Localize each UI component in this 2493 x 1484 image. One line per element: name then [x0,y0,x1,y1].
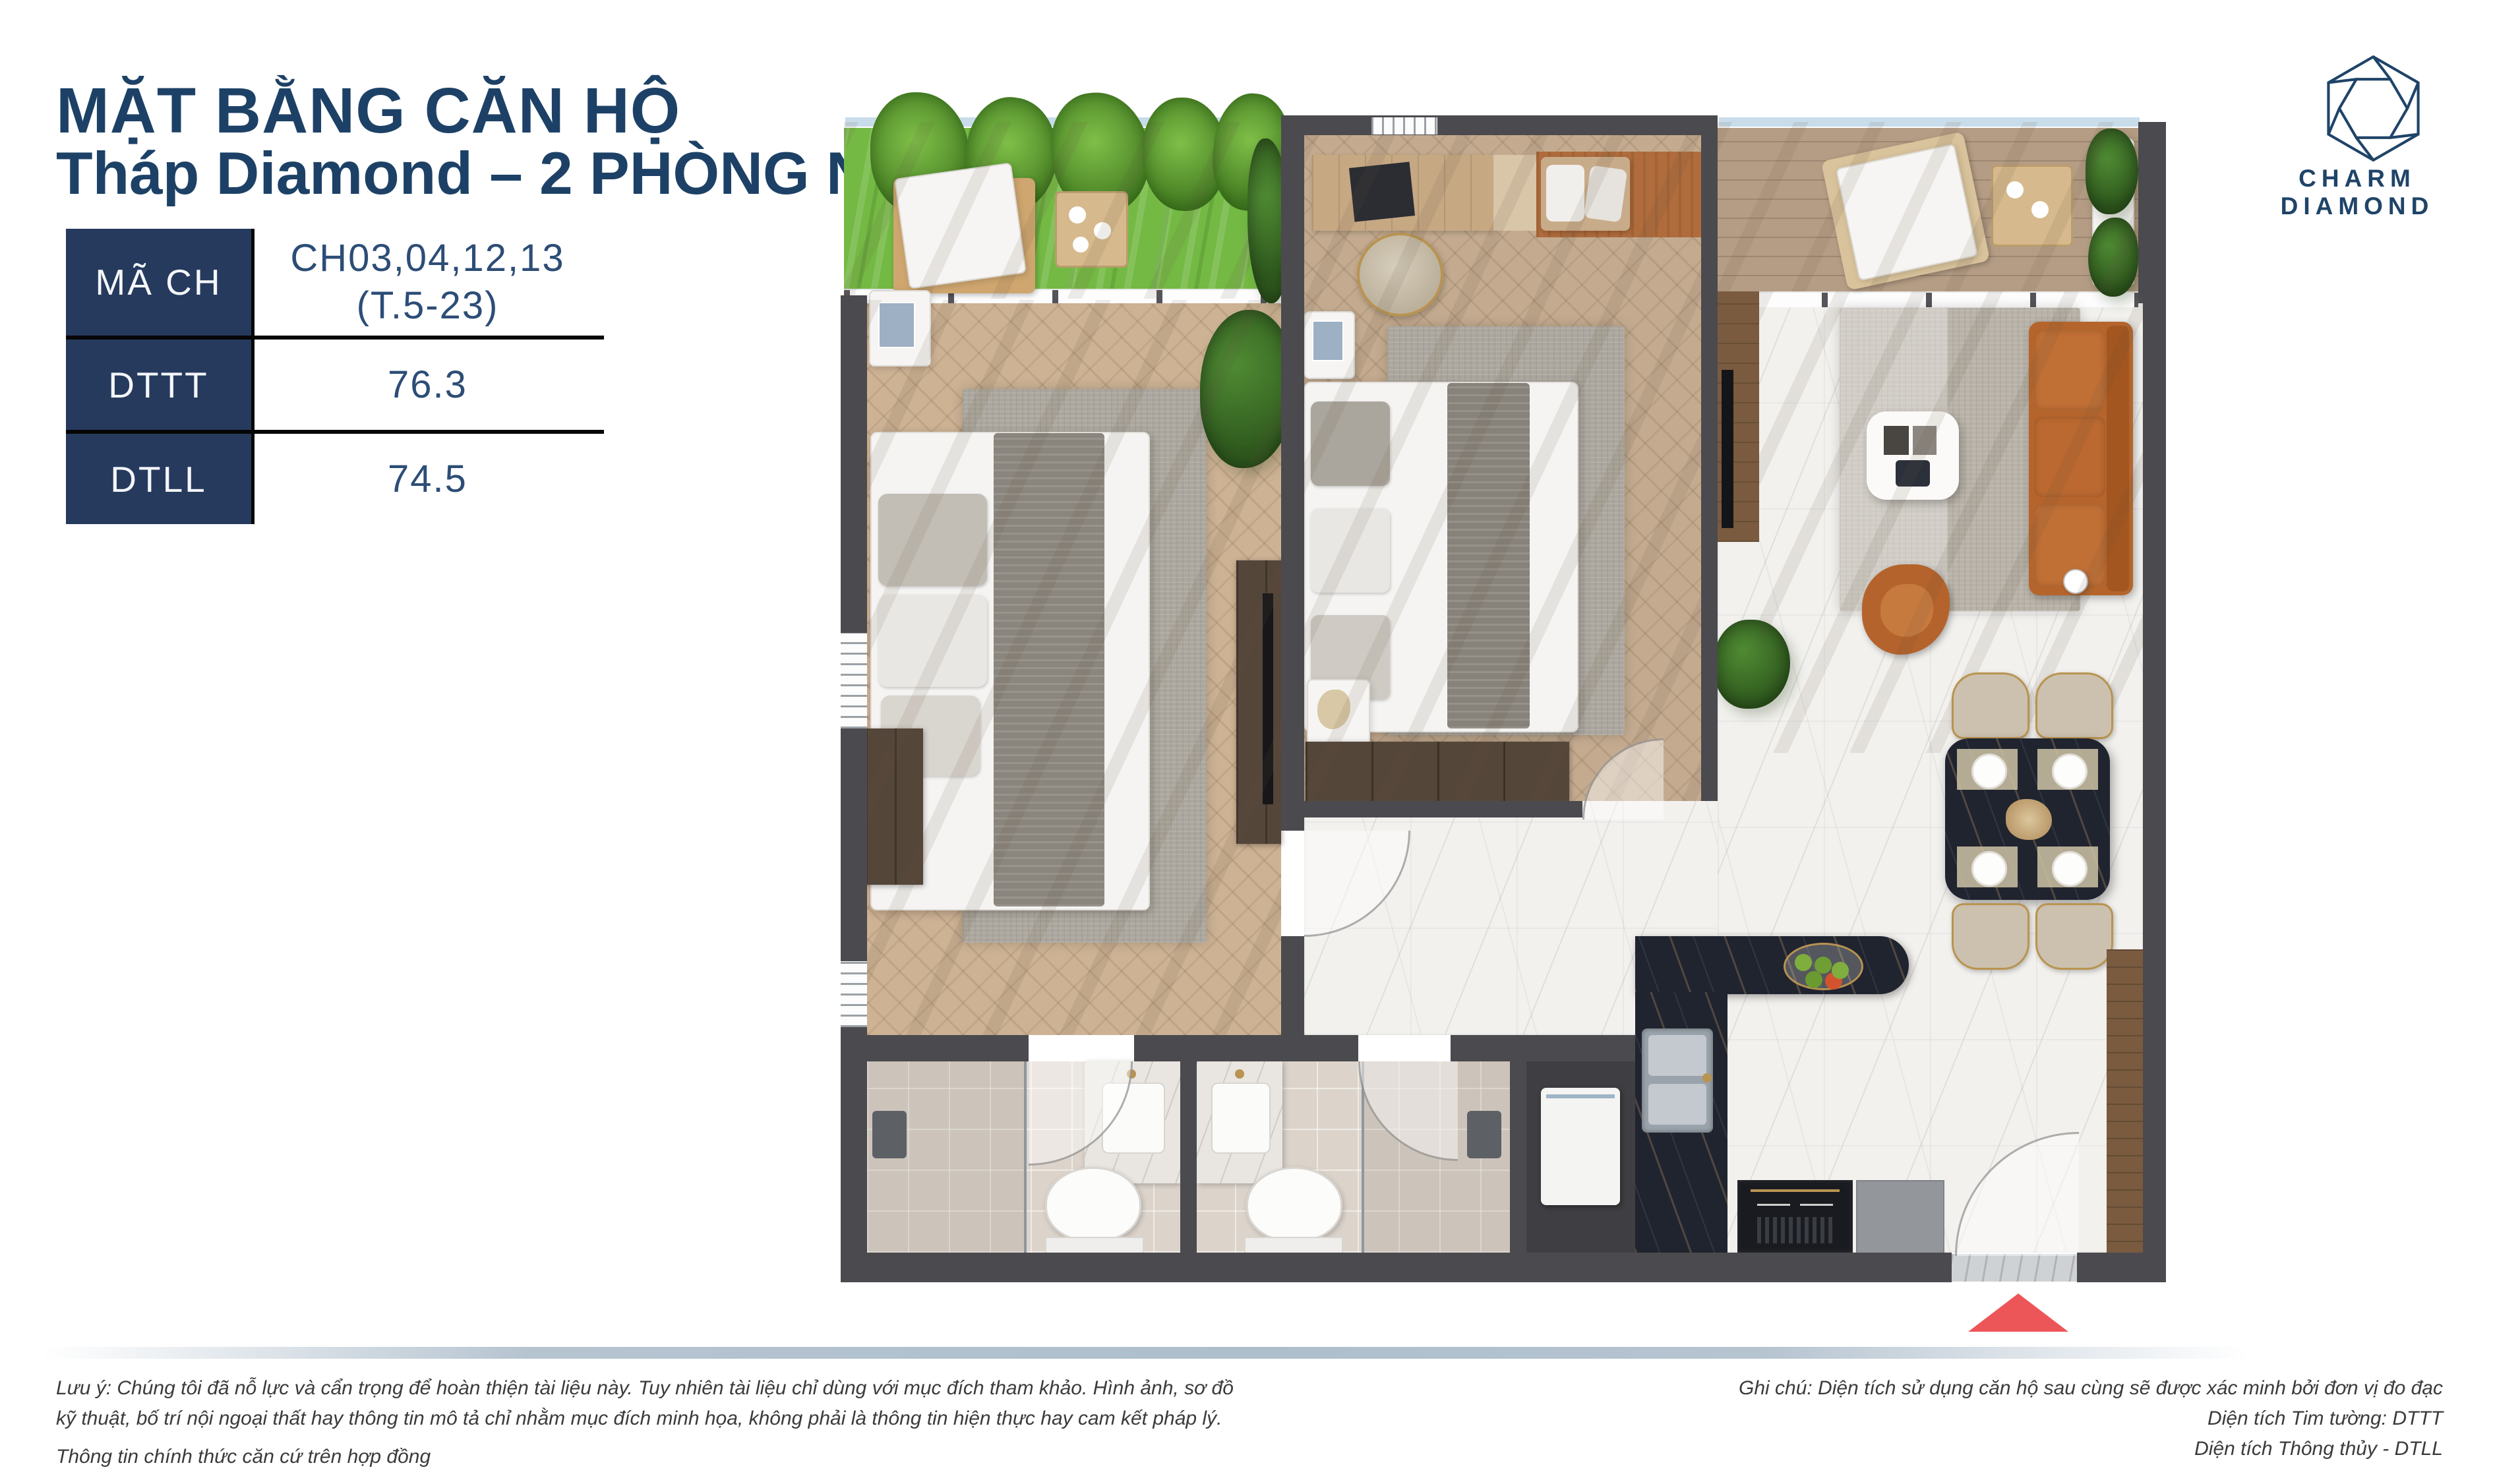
washer-control-strip [1546,1094,1615,1098]
dining-chair-4 [2035,903,2113,970]
bedroom-1-left-window [841,633,867,728]
bedroom-2-vanity-stool [1357,233,1443,316]
wall-niche-left [1510,1061,1526,1253]
footer-notes: Ghi chú: Diện tích sử dụng căn hộ sau cù… [1739,1373,2443,1464]
wall-bathroom-top-2 [1134,1035,1358,1061]
cup-2 [1094,222,1111,239]
bedroom-1-side-table [869,290,931,367]
brand-name: CHARM DIAMOND [2221,165,2493,220]
magazines [878,302,915,348]
bedroom-2-counter [1493,155,1536,231]
bathroom-2-shower-head [1467,1111,1501,1158]
footer-right-line-2: Diện tích Tim tường: DTTT [1739,1404,2443,1434]
oven-text-line-2 [1800,1204,1833,1206]
kitchen-island-bar [1635,936,1909,994]
oven-controls [1757,1217,1833,1243]
sink-bowl-1 [1648,1035,1706,1076]
wall-bedroom-divider-lower [1281,936,1304,1035]
entry-wood-panel-wall [2107,949,2143,1253]
bathroom-2-tap [1235,1069,1244,1079]
wall-top-bedroom-2 [1281,115,1718,135]
wall-bedroom-2-living [1701,122,1718,801]
bed-1-pillow-1 [878,494,987,586]
bathroom-1-shower-head [872,1111,907,1158]
sofa-cushion-1 [2034,330,2105,410]
bathroom-1-shower-glass [1024,1061,1027,1253]
dining-table [1945,738,2110,900]
bedroom-2-bench [1541,157,1630,231]
bedroom-2-wardrobe [1306,742,1569,801]
oven-text-line-1 [1757,1204,1790,1206]
bench-pillow-1 [1546,165,1584,222]
divider-bar [43,1347,2248,1359]
footer-left-line-2: kỹ thuật, bố trí nội ngoại thất hay thôn… [56,1404,1234,1434]
cup-3 [1073,237,1089,252]
wall-bathroom-top-3 [1451,1035,1635,1061]
laptop [1349,162,1415,222]
sink-bowl-2 [1648,1084,1706,1125]
placemat-2 [2037,749,2098,790]
placemat-3 [1957,846,2018,887]
bedroom-2-side-table-top [1304,311,1355,379]
oven [1737,1180,1853,1253]
plate-3 [1971,851,2007,887]
bathroom-2-toilet-bowl [1246,1167,1342,1242]
cup-5 [2031,201,2049,218]
dining-chair-3 [1952,903,2029,970]
bed-2-pillow-1 [1311,401,1390,486]
wall-bottom-right [2077,1253,2166,1282]
unit-codes-line1: CH03,04,12,13 [290,235,564,282]
bench-pillow-2 [1584,165,1628,222]
table-rule-vertical [251,229,255,524]
coffee-table-book-1 [1884,426,1909,455]
entrance-doormat [1952,1254,2077,1282]
balcony-2-glass-rail [1718,116,2141,128]
wall-balcony-2-right [2138,122,2166,303]
coffee-table [1867,411,1959,500]
coffee-table-book-2 [1913,426,1937,455]
fruit-bowl [1784,943,1863,990]
balcony-2-window-rail [1718,291,2138,307]
table-label-dttt: DTTT [66,340,251,430]
page-title: MẶT BẰNG CĂN HỘ [56,74,680,148]
plate-1 [1971,754,2007,789]
bedroom-1-wardrobe [866,728,923,885]
kitchen-sink [1642,1028,1713,1133]
bed-2-throw-blanket [1447,383,1530,728]
sofa-cushion-2 [2034,417,2105,497]
plate-2 [2052,754,2088,789]
table-centerpiece [2006,799,2052,840]
bedroom-2-top-window [1371,117,1437,134]
sofa-backrest [2107,326,2129,591]
dining-chair-2 [2035,672,2113,739]
table-value-dtll: 74.5 [251,434,604,524]
bedroom-1-tv [1263,593,1273,804]
table-value-unit-codes: CH03,04,12,13 (T.5-23) [251,229,604,336]
living-tv [1722,370,1733,528]
bed-1-pillow-2 [878,595,987,687]
cup-1 [1069,206,1086,223]
magazines-2 [1312,320,1344,361]
fruit-apples [1795,954,1812,971]
balcony-1-table [1055,191,1128,268]
wall-bedroom-2-bottom [1304,801,1582,817]
bathroom-2-vanity [1197,1061,1282,1183]
wall-bathroom-divider [1180,1061,1197,1253]
plate-4 [2052,851,2088,887]
table-label-ma-ch: MÃ CH [66,229,251,336]
page-subtitle: Tháp Diamond – 2 PHÒNG NGỦ [56,140,959,208]
bed-2-pillow-2 [1311,508,1390,593]
washing-machine [1541,1088,1620,1205]
footer-left-line-1: Lưu ý: Chúng tôi đã nỗ lực và cẩn trọng … [56,1373,1234,1404]
kitchen-faucet [1702,1073,1712,1083]
sofa [2029,322,2133,595]
left-window-lower [841,961,867,1027]
bed-1-throw-blanket [994,433,1104,906]
balcony-1-lounge-cushion [894,162,1027,289]
dried-flowers [1317,690,1350,729]
floor-plan [841,92,2166,1286]
cup-4 [2006,181,2024,198]
dishwasher [1856,1180,1944,1255]
wall-left-upper [841,295,867,633]
coffee-table-tray [1896,460,1930,487]
wall-bathroom-top-1 [841,1035,1029,1061]
balcony-2-plant-bottom [2088,218,2138,297]
hexagon-diamond-icon [2319,54,2428,163]
floor-lamp [2063,569,2088,594]
wall-left-middle [841,728,867,961]
footer-right-line-1: Ghi chú: Diện tích sử dụng căn hộ sau cù… [1739,1373,2443,1404]
bedroom-2-desk [1312,155,1493,231]
dining-chair-1 [1952,672,2029,739]
table-label-dtll: DTLL [66,434,251,524]
balcony-2-table [1991,165,2073,247]
bathroom-1-toilet-bowl [1045,1167,1141,1242]
unit-info-table: MÃ CH CH03,04,12,13 (T.5-23) DTTT 76.3 D… [66,229,604,524]
table-value-dttt: 76.3 [251,340,604,430]
utility-niche [1526,1061,1635,1253]
entrance-arrow [1968,1293,2068,1332]
armchair-seat [1880,584,1933,637]
hexagon-diamond-icon-svg [2319,54,2428,163]
footer-right-line-3: Diện tích Thông thủy - DTLL [1739,1434,2443,1464]
footer-disclaimer: Lưu ý: Chúng tôi đã nỗ lực và cẩn trọng … [56,1373,1234,1472]
placemat-1 [1957,749,2018,790]
bathroom-2-sink [1211,1083,1271,1154]
bedroom-1-tv-cabinet [1236,560,1281,844]
footer-left-line-3: Thông tin chính thức căn cứ trên hợp đồn… [56,1442,1234,1472]
oven-handle [1751,1189,1840,1192]
unit-codes-line2: (T.5-23) [357,282,499,330]
wall-bottom-left [841,1253,1952,1282]
wall-right [2143,291,2166,1253]
wall-bedroom-divider-upper [1281,122,1304,831]
placemat-4 [2037,846,2098,887]
